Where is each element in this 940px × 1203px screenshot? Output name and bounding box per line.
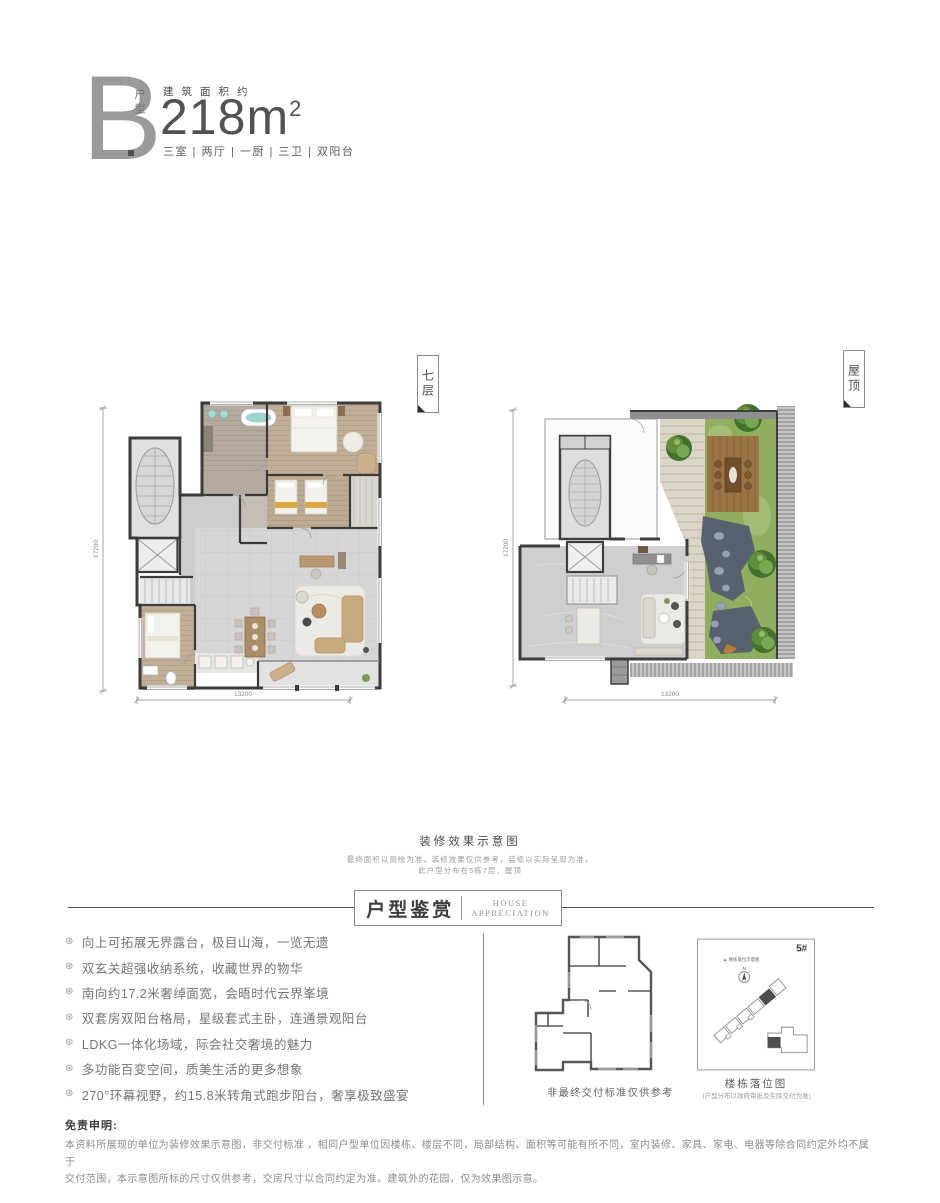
feature-text: 270°环幕视野，约15.8米转角式跑步阳台，奢享极致盛宴 (82, 1085, 409, 1104)
sink-left (208, 410, 216, 418)
round-rug (343, 432, 363, 452)
sink-right (220, 410, 228, 418)
section-title-en1: HOUSE (471, 898, 549, 908)
feature-item: ⊛270°环幕视野，约15.8米转角式跑步阳台，奢享极致盛宴 (65, 1081, 477, 1106)
roof-tile-strip-right (777, 406, 795, 659)
wardrobe-floor (350, 475, 380, 528)
section-title-en2: APPRECIATION (471, 908, 549, 918)
lower-bed (145, 613, 180, 658)
dim-text-horizontal: 13200 (661, 691, 679, 698)
floor-plan-roof: 17200 13200 (498, 396, 808, 708)
location-map-subcaption: (户型分布以政府审批及实际交付为准) (664, 1090, 849, 1100)
delivery-standard-plan (528, 930, 688, 1080)
master-bed (283, 406, 345, 452)
dim-text-vertical: 17200 (93, 540, 100, 558)
building-location-map: 5# ▲ 楼栋落位示意图 N (697, 938, 815, 1072)
dim-text-horizontal: 13200 (234, 691, 252, 698)
feature-text: 多功能百变空间，质美生活的更多想象 (82, 1059, 303, 1078)
bullet-icon: ⊛ (65, 962, 74, 972)
bullet-icon: ⊛ (65, 987, 74, 997)
mini-plan-outline (536, 937, 651, 1070)
feature-text: 南向约17.2米奢绰面宽，会晤时代云界峯境 (82, 983, 329, 1002)
plan-drawing-level7 (130, 401, 383, 692)
area-number: 218 (160, 89, 246, 145)
bullet-icon: ⊛ (65, 1038, 74, 1048)
roof-shaft (611, 659, 628, 684)
tag-corner-triangle (418, 405, 425, 412)
bullet-icon: ⊛ (65, 1089, 74, 1099)
chaise-lounge (357, 453, 376, 474)
feature-text: 向上可拓展无界露台，极目山海，一览无遗 (82, 932, 329, 951)
feature-list: ⊛向上可拓展无界露台，极目山海，一览无遗 ⊛双玄关超强收纳系统，收藏世界的物华 … (65, 929, 477, 1107)
dimension-vertical-17200 (509, 408, 517, 689)
bullet-icon: ⊛ (65, 937, 74, 947)
location-map-caption: 楼栋落位图 (676, 1076, 836, 1091)
elevator-shaft (567, 542, 603, 572)
section-title-divider (461, 896, 462, 920)
unit-type-dot (128, 150, 134, 156)
feature-text: 双玄关超强收纳系统，收藏世界的物华 (82, 958, 303, 977)
vanity (143, 666, 158, 675)
feature-item: ⊛向上可拓展无界露台，极目山海，一览无遗 (65, 929, 477, 954)
wardrobe-cabinet (203, 426, 213, 452)
area-unit: m (246, 89, 289, 145)
disclaimer-line2: 交付范围，本示意图所标的尺寸仅供参考，交房尺寸以合同约定为准。建筑外的花园，仅为… (65, 1171, 877, 1188)
section-header-box: 户型鉴赏 HOUSE APPRECIATION (354, 890, 562, 926)
disclaimer-line1: 本资料所展现的单位为装修效果示意图，非交付标准 ，相同户型单位因楼栋、楼层不同，… (65, 1137, 877, 1171)
floor-tag-roof-label: 屋顶 (846, 364, 863, 394)
layout-specs: 三室 | 两厅 | 一厨 | 三卫 | 双阳台 (163, 143, 354, 159)
compass-n: N (743, 966, 746, 971)
stair-flight (567, 576, 617, 604)
floor-tag-roof: 屋顶 (843, 350, 865, 408)
tag-corner-triangle (844, 400, 851, 407)
floor-plan-level7: 17200 13200 (85, 396, 405, 708)
floor-tag-level7: 七层 (417, 355, 439, 413)
stair-flight-floor (140, 577, 190, 605)
brochure-page: B 户型 建筑面积约 218m2 三室 | 两厅 | 一厨 | 三卫 | 双阳台… (0, 0, 940, 1203)
feature-item: ⊛南向约17.2米奢绰面宽，会晤时代云界峯境 (65, 980, 477, 1005)
disclaimer: 免责申明: 本资料所展现的单位为装修效果示意图，非交付标准 ，相同户型单位因楼栋… (65, 1117, 877, 1188)
unit-type-letter: B (82, 58, 162, 178)
section-title-cn: 户型鉴赏 (366, 895, 454, 922)
oval-staircase (136, 448, 174, 524)
wooden-deck (707, 436, 759, 512)
render-note-title: 装修效果示意图 (170, 833, 770, 849)
feature-item: ⊛LDKG一体化场域，际会社交奢境的魅力 (65, 1031, 477, 1056)
bullet-icon: ⊛ (65, 1064, 74, 1074)
floor-tag-level7-label: 七层 (420, 369, 437, 399)
toilet (166, 672, 176, 685)
feature-item: ⊛多功能百变空间，质美生活的更多想象 (65, 1056, 477, 1081)
render-note: 装修效果示意图 最终面积以测绘为准，装修效果仅供参考，装修以实际呈现为准， 此户… (170, 833, 770, 876)
living-rug-sofa (295, 586, 369, 656)
dimension-vertical-17200 (99, 406, 107, 694)
highlighted-footprint-unit (768, 1037, 781, 1048)
feature-item: ⊛双套房双阳台格局，星级套式主卧，连通景观阳台 (65, 1005, 477, 1030)
disclaimer-title: 免责申明: (65, 1117, 877, 1133)
vertical-divider (483, 933, 484, 1105)
balcony-plant (362, 674, 370, 682)
unit-type-label: 户型 (131, 88, 147, 118)
bathtub (241, 409, 276, 426)
building-number: 5# (796, 943, 807, 954)
roof-tile-strip-bottom (630, 663, 793, 677)
bullet-icon: ⊛ (65, 1013, 74, 1023)
render-note-line2: 此户型分布在5栋7层、屋顶 (170, 865, 770, 876)
stairwell (560, 436, 610, 539)
feature-text: LDKG一体化场域，际会社交奢境的魅力 (82, 1034, 313, 1053)
plan-drawing-roof (520, 404, 795, 684)
parapet-top (630, 411, 777, 419)
dim-text-vertical: 17200 (503, 539, 510, 557)
locmap-inner-label: ▲ 楼栋落位示意图 (723, 956, 760, 963)
feature-item: ⊛双玄关超强收纳系统，收藏世界的物华 (65, 954, 477, 979)
render-note-line1: 最终面积以测绘为准，装修效果仅供参考，装修以实际呈现为准， (170, 854, 770, 865)
feature-text: 双套房双阳台格局，星级套式主卧，连通景观阳台 (82, 1008, 368, 1027)
area-value: 218m2 (160, 92, 301, 142)
area-superscript: 2 (289, 96, 301, 121)
